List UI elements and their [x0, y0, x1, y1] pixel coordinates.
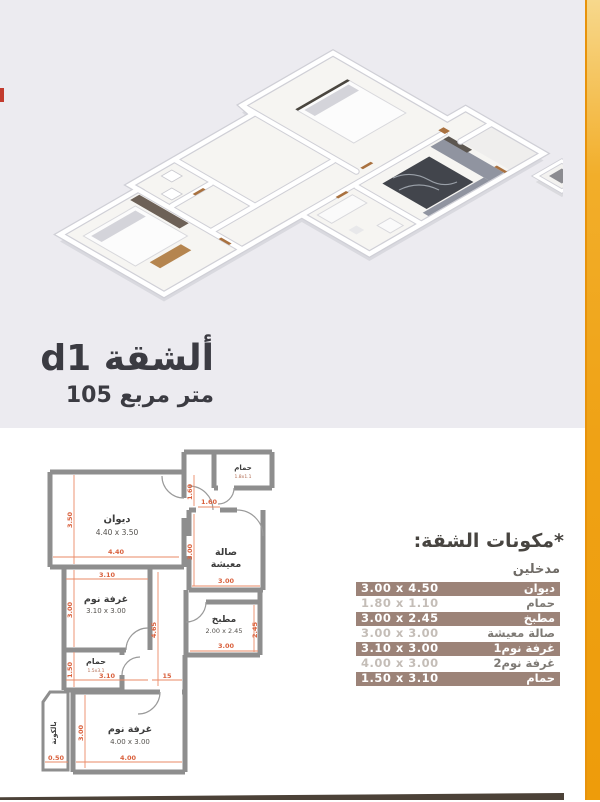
- isometric-floorplan-art: [33, 18, 563, 310]
- room-dims: 1.50 x 3.10: [361, 672, 439, 686]
- label-balcony: بالكونة: [50, 721, 58, 745]
- room-name: ديوان: [524, 582, 555, 596]
- components-title: *مكونات الشقة:: [352, 530, 564, 552]
- svg-text:0.50: 0.50: [48, 754, 65, 762]
- label-bed1: غرفة نوم: [84, 594, 128, 605]
- isometric-render: [33, 18, 563, 310]
- svg-text:1.60: 1.60: [186, 484, 194, 501]
- label-bath-small-dims: 1.5x3.1: [88, 668, 105, 674]
- svg-text:3.00: 3.00: [218, 577, 235, 585]
- room-name: غرفة نوم1: [494, 642, 556, 656]
- label-bed1-dims: 3.10 x 3.00: [86, 607, 126, 615]
- flyer-page: { "title": { "name": "ألشقة d1", "area":…: [0, 0, 600, 800]
- label-bath-top: حمام: [234, 464, 252, 472]
- svg-text:3.10: 3.10: [99, 571, 116, 579]
- svg-text:3.00: 3.00: [77, 725, 85, 742]
- svg-text:3.00: 3.00: [66, 602, 74, 619]
- room-dims: 3.00 x 3.00: [361, 627, 439, 641]
- label-diwan: ديوان: [103, 514, 130, 525]
- room-name: حمام: [526, 597, 555, 611]
- label-living-2: معيشة: [211, 559, 242, 570]
- svg-text:1.60: 1.60: [201, 498, 218, 506]
- room-name: صالة معيشة: [487, 627, 555, 641]
- plan-walls: [50, 452, 272, 772]
- svg-text:3.50: 3.50: [66, 512, 74, 529]
- room-dims: 3.00 x 4.50: [361, 582, 439, 596]
- svg-text:4.40: 4.40: [108, 548, 125, 556]
- svg-text:15: 15: [162, 672, 172, 680]
- table-row: صالة معيشة 3.00 x 3.00: [356, 627, 560, 641]
- floorplan-drawing: 3.50 4.40 3.10 3.00 1.50 3.10 15 4.65 3.…: [28, 440, 308, 798]
- svg-text:4.65: 4.65: [150, 622, 158, 639]
- label-bed2-dims: 4.00 x 3.00: [110, 738, 150, 746]
- title-block: ألشقة d1 105 متر مربع: [28, 336, 214, 410]
- svg-text:3.00: 3.00: [186, 544, 194, 561]
- components-panel: *مكونات الشقة: مدخلين ديوان 3.00 x 4.50 …: [352, 530, 564, 687]
- svg-text:4.00: 4.00: [120, 754, 137, 762]
- svg-text:1.50: 1.50: [66, 662, 74, 679]
- room-dims: 3.00 x 2.45: [361, 612, 439, 626]
- label-living-1: صالة: [215, 547, 237, 558]
- svg-text:3.00: 3.00: [218, 642, 235, 650]
- table-row: ديوان 3.00 x 4.50: [356, 582, 560, 596]
- table-row: مطبخ 3.00 x 2.45: [356, 612, 560, 626]
- label-diwan-dims: 4.40 x 3.50: [96, 528, 139, 537]
- table-row: حمام 1.80 x 1.10: [356, 597, 560, 611]
- red-edge-mark: [0, 88, 4, 102]
- table-row: غرفة نوم1 3.10 x 3.00: [356, 642, 560, 656]
- room-name: حمام: [526, 672, 555, 686]
- floorplan-2d: 3.50 4.40 3.10 3.00 1.50 3.10 15 4.65 3.…: [28, 440, 308, 798]
- room-name: مطبخ: [524, 612, 555, 626]
- room-dims: 3.10 x 3.00: [361, 642, 439, 656]
- svg-text:2.45: 2.45: [251, 622, 259, 639]
- entrances-label: مدخلين: [352, 562, 560, 577]
- apartment-title: ألشقة d1: [28, 336, 214, 382]
- label-bath-small: حمام: [86, 657, 106, 666]
- room-dims: 4.00 x 3.00: [361, 657, 439, 671]
- label-bed2: غرفة نوم: [108, 724, 152, 735]
- table-row: حمام 1.50 x 3.10: [356, 672, 560, 686]
- label-kitchen-dims: 2.00 x 2.45: [206, 627, 243, 635]
- label-kitchen: مطبخ: [212, 615, 237, 625]
- accent-stripe: [585, 0, 600, 800]
- table-row: غرفة نوم2 4.00 x 3.00: [356, 657, 560, 671]
- label-bath-top-dims: 1.8x1.1: [235, 474, 252, 480]
- apartment-area: 105 متر مربع: [28, 382, 214, 410]
- components-rows: ديوان 3.00 x 4.50 حمام 1.80 x 1.10 مطبخ …: [356, 582, 560, 686]
- room-name: غرفة نوم2: [494, 657, 556, 671]
- room-dims: 1.80 x 1.10: [361, 597, 439, 611]
